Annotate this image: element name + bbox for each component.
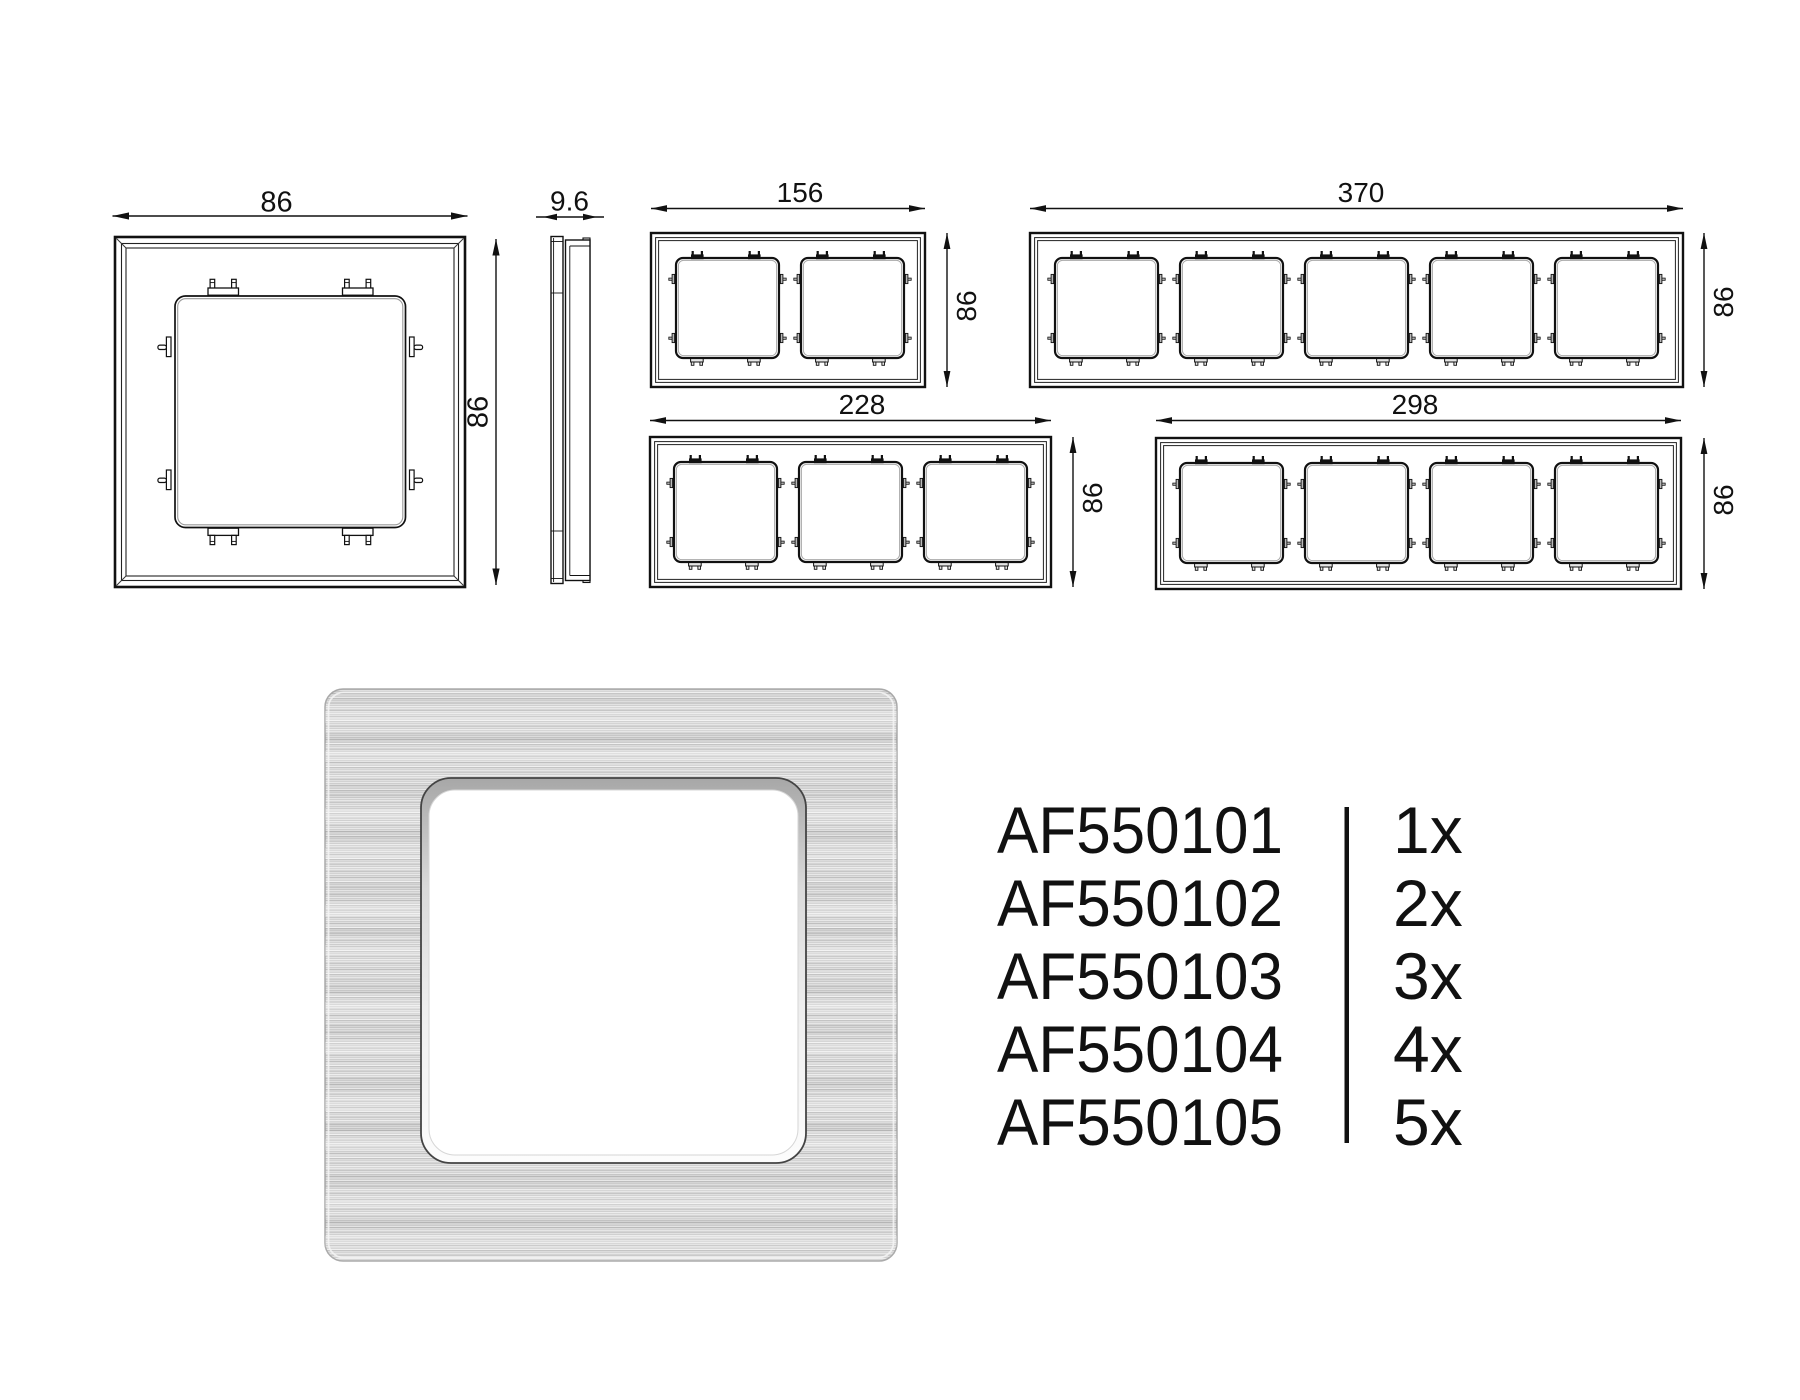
- svg-text:86: 86: [1708, 484, 1739, 515]
- svg-text:86: 86: [463, 396, 495, 428]
- svg-text:AF550103: AF550103: [997, 939, 1283, 1013]
- svg-text:86: 86: [951, 290, 982, 321]
- svg-text:AF550101: AF550101: [997, 793, 1283, 867]
- svg-text:86: 86: [1708, 286, 1739, 317]
- svg-text:4x: 4x: [1393, 1012, 1463, 1086]
- svg-text:3x: 3x: [1393, 939, 1463, 1013]
- svg-text:AF550102: AF550102: [997, 866, 1283, 940]
- svg-text:370: 370: [1338, 177, 1385, 208]
- svg-text:9.6: 9.6: [550, 186, 589, 217]
- svg-text:1x: 1x: [1393, 793, 1463, 867]
- svg-text:AF550105: AF550105: [997, 1085, 1283, 1159]
- svg-text:5x: 5x: [1393, 1085, 1463, 1159]
- svg-text:298: 298: [1392, 389, 1439, 420]
- svg-text:2x: 2x: [1393, 866, 1463, 940]
- svg-text:156: 156: [777, 177, 824, 208]
- svg-text:86: 86: [1077, 482, 1108, 513]
- svg-text:228: 228: [839, 389, 886, 420]
- svg-text:AF550104: AF550104: [997, 1012, 1283, 1086]
- svg-text:86: 86: [260, 187, 292, 219]
